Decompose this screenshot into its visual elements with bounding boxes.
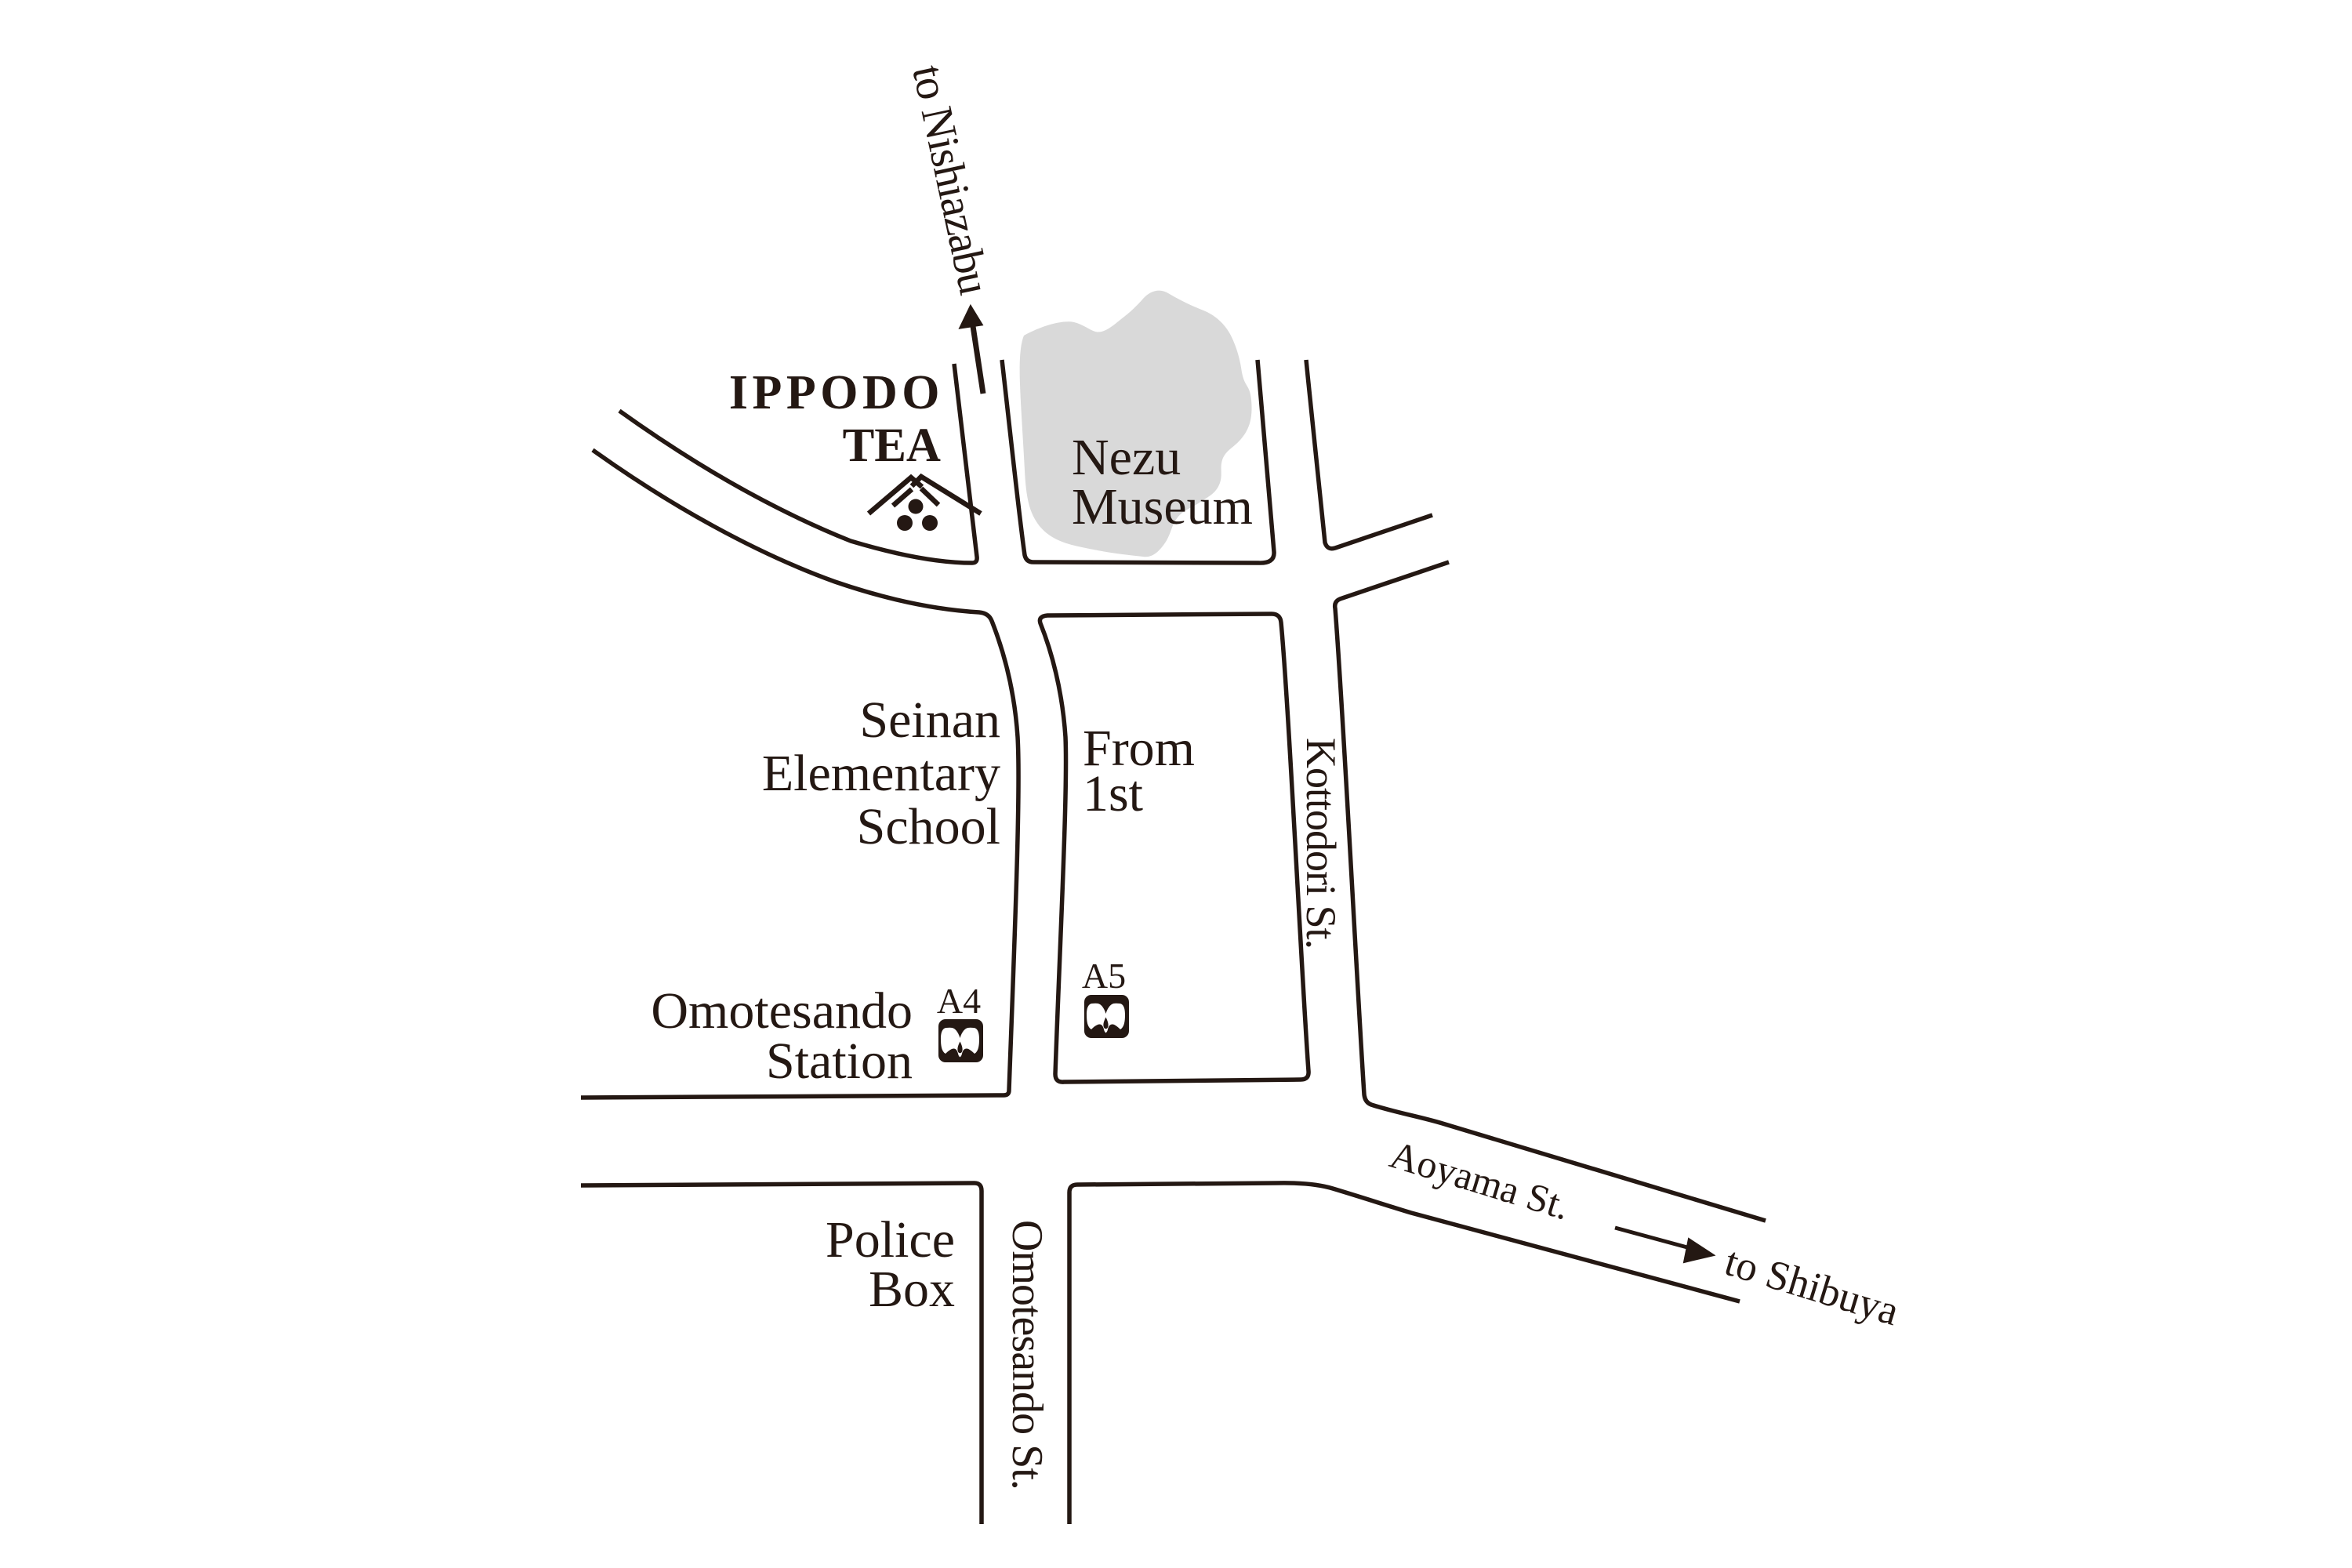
svg-text:IPPODO: IPPODO xyxy=(729,366,944,419)
svg-text:School: School xyxy=(857,798,1000,855)
svg-text:Omotesando: Omotesando xyxy=(651,982,913,1040)
svg-text:Box: Box xyxy=(869,1261,955,1318)
svg-text:Omotesando St.: Omotesando St. xyxy=(1003,1220,1051,1490)
svg-text:TEA: TEA xyxy=(843,419,941,472)
svg-text:Kottodori St.: Kottodori St. xyxy=(1298,738,1345,949)
svg-text:Museum: Museum xyxy=(1072,478,1253,535)
svg-text:A5: A5 xyxy=(1082,956,1126,996)
svg-text:A4: A4 xyxy=(937,981,981,1021)
svg-text:Seinan: Seinan xyxy=(859,691,1000,749)
svg-text:1st: 1st xyxy=(1083,765,1143,822)
svg-text:Station: Station xyxy=(766,1033,913,1090)
svg-text:Elementary: Elementary xyxy=(762,745,1000,802)
